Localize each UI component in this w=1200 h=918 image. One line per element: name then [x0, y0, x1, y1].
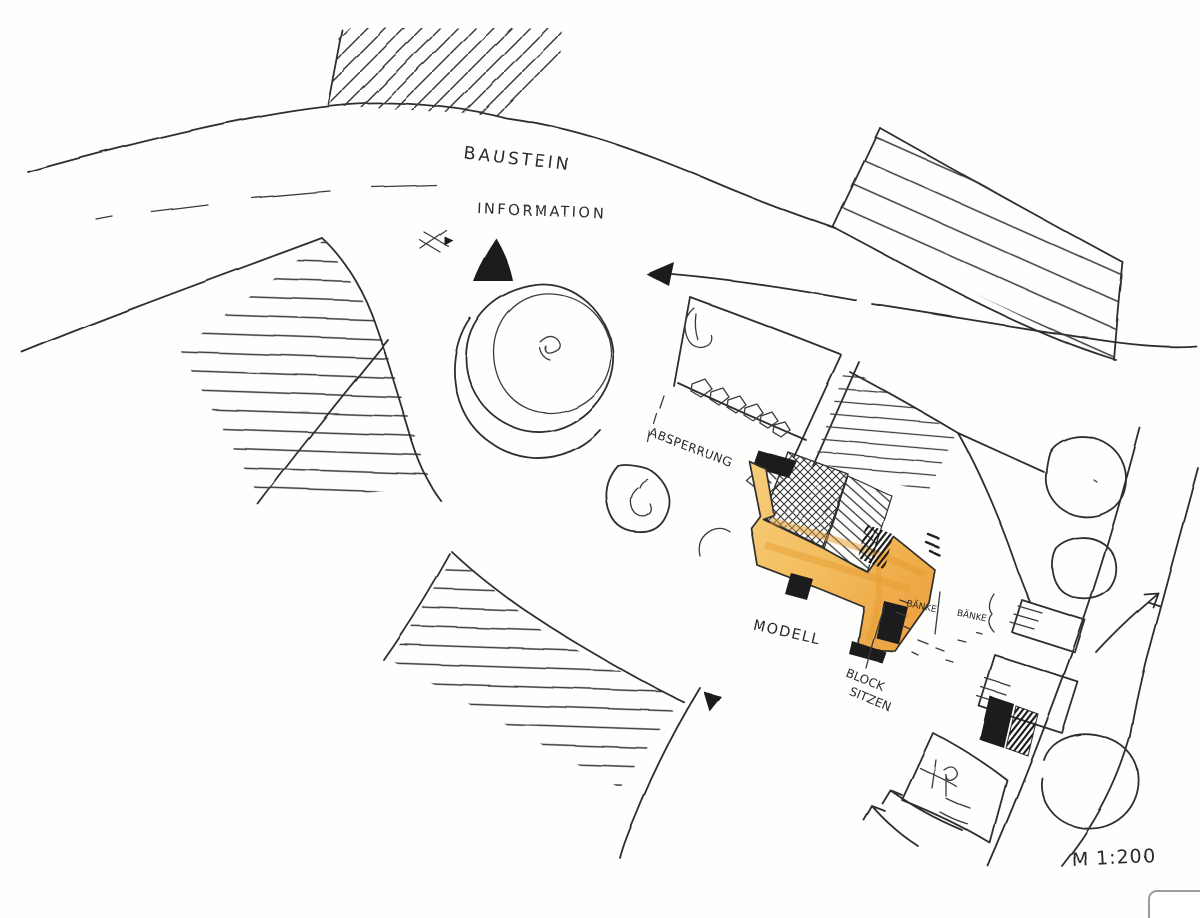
- small-arrowhead: [704, 692, 722, 712]
- building-parcels: [648, 297, 1044, 572]
- information-triangle-icon: [473, 238, 513, 281]
- hatched-building-top: [328, 28, 562, 116]
- right-side-parcels: [958, 428, 1198, 866]
- hatched-area-bottom-left: [384, 552, 722, 858]
- site-plan-sketch: BAUSTEIN INFORMATION ABSPERRUNG MODELL B…: [0, 0, 1200, 918]
- label-scale: M 1:200: [1071, 845, 1156, 871]
- flow-arrow: [646, 262, 856, 300]
- hatched-area-left: [22, 238, 442, 504]
- tree-blob: [1046, 437, 1126, 517]
- information-marker: [420, 230, 513, 281]
- corner-widget-button[interactable]: [1148, 890, 1200, 918]
- label-bench-right: BÄNKE: [955, 607, 988, 624]
- label-absperrung: ABSPERRUNG: [648, 426, 735, 470]
- tree-blob: [1041, 734, 1138, 828]
- sketch-page: BAUSTEIN INFORMATION ABSPERRUNG MODELL B…: [0, 0, 1200, 918]
- barrier-blob: [606, 465, 730, 556]
- street-centerline-dashes: [96, 185, 436, 219]
- label-modell: MODELL: [751, 617, 822, 648]
- stone-row: [691, 379, 790, 437]
- left-arrowhead-icon: [646, 262, 674, 286]
- label-information: INFORMATION: [477, 201, 607, 223]
- hatched-building-top-right: [832, 127, 1122, 360]
- paved-area: [864, 733, 1007, 846]
- tree-circle: [454, 285, 613, 459]
- sketch-arrow-icon: [420, 230, 453, 252]
- label-baustein: BAUSTEIN: [462, 143, 573, 176]
- small-tree: [685, 308, 712, 348]
